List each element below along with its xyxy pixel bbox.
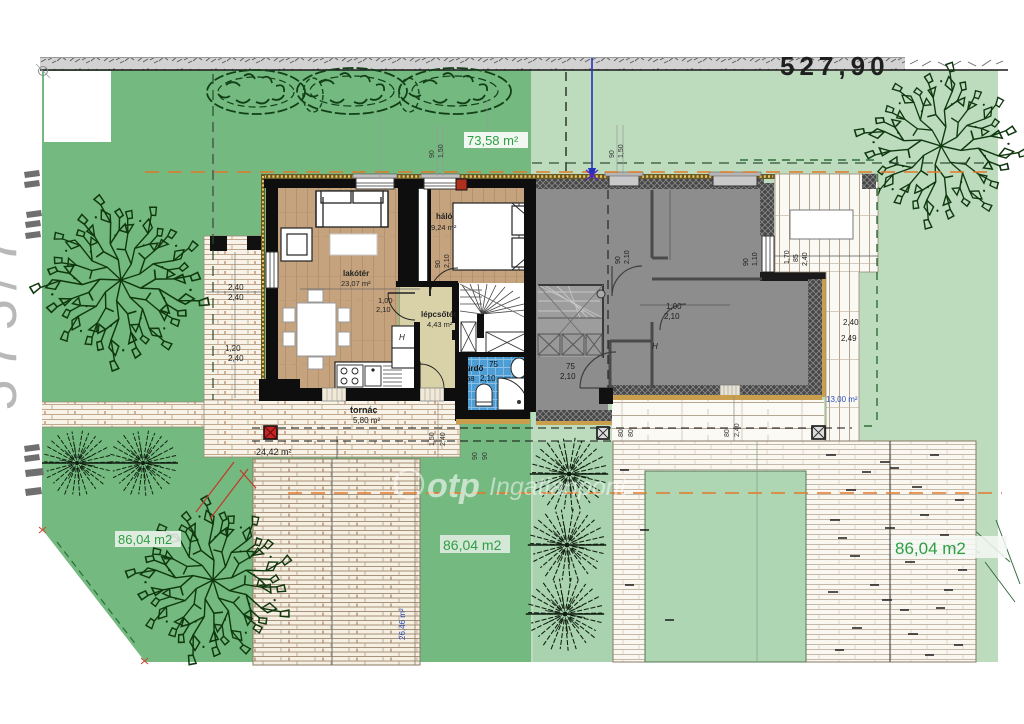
svg-text:2,40: 2,40 <box>228 283 244 292</box>
svg-text:90: 90 <box>482 452 489 460</box>
svg-text:90: 90 <box>435 260 442 268</box>
svg-text:2,40: 2,40 <box>843 318 859 327</box>
svg-text:2,68: 2,68 <box>460 374 475 383</box>
svg-text:90: 90 <box>429 150 436 158</box>
svg-text:527,90: 527,90 <box>780 51 890 81</box>
svg-text:2,10: 2,10 <box>480 374 496 383</box>
svg-text:2,49: 2,49 <box>841 334 857 343</box>
svg-text:26,46 m²: 26,46 m² <box>398 608 407 640</box>
svg-text:2,40: 2,40 <box>440 432 447 446</box>
svg-text:1,10: 1,10 <box>752 252 759 266</box>
svg-text:80: 80 <box>628 429 635 437</box>
svg-text:75: 75 <box>566 362 575 371</box>
svg-text:4,43 m²: 4,43 m² <box>427 320 453 329</box>
svg-text:13,00 m²: 13,00 m² <box>826 395 858 404</box>
svg-text:1,50: 1,50 <box>429 432 436 446</box>
svg-text:H: H <box>399 333 405 342</box>
svg-text:23,07 m²: 23,07 m² <box>341 279 371 288</box>
svg-text:2,40: 2,40 <box>802 252 809 266</box>
svg-text:86,04 m2: 86,04 m2 <box>443 537 502 553</box>
svg-text:80: 80 <box>618 429 625 437</box>
svg-text:1,00: 1,00 <box>666 302 682 311</box>
svg-text:lakótér: lakótér <box>343 269 369 278</box>
svg-text:2,10: 2,10 <box>560 372 576 381</box>
svg-text:90: 90 <box>615 256 622 264</box>
svg-text:H: H <box>652 342 658 351</box>
svg-text:24,42 m²: 24,42 m² <box>256 447 292 457</box>
svg-text:86,04 m2: 86,04 m2 <box>895 539 966 558</box>
svg-text:1,00: 1,00 <box>378 296 393 305</box>
svg-text:90: 90 <box>609 150 616 158</box>
svg-text:fürdő: fürdő <box>463 364 484 373</box>
svg-text:75: 75 <box>489 360 498 369</box>
svg-text:2,40: 2,40 <box>228 354 244 363</box>
svg-text:tornác: tornác <box>350 405 378 415</box>
svg-text:2,10: 2,10 <box>624 250 631 264</box>
svg-text:háló: háló <box>436 212 453 221</box>
svg-text:2,10: 2,10 <box>376 305 391 314</box>
svg-text:80: 80 <box>724 429 731 437</box>
svg-text:otp: otp <box>427 467 480 505</box>
svg-text:9,24 m²: 9,24 m² <box>431 223 457 232</box>
svg-text:2,40: 2,40 <box>734 423 741 437</box>
svg-text:575/7: 575/7 <box>0 225 28 410</box>
svg-text:1,20: 1,20 <box>225 344 241 353</box>
svg-text:1,50: 1,50 <box>618 144 625 158</box>
svg-text:2,40: 2,40 <box>228 293 244 302</box>
svg-text:85: 85 <box>793 254 800 262</box>
svg-text:2,10: 2,10 <box>664 312 680 321</box>
svg-text:1,50: 1,50 <box>438 144 445 158</box>
svg-text:1,70: 1,70 <box>784 250 791 264</box>
svg-text:5,80 m²: 5,80 m² <box>353 416 380 425</box>
svg-text:73,58 m²: 73,58 m² <box>467 133 519 148</box>
svg-text:lépcsőtér: lépcsőtér <box>421 310 457 319</box>
svg-text:2,10: 2,10 <box>444 254 451 268</box>
svg-text:86,04 m2: 86,04 m2 <box>118 532 172 547</box>
svg-text:Ingatlanpont: Ingatlanpont <box>489 473 628 501</box>
svg-text:90: 90 <box>472 452 479 460</box>
svg-text:90: 90 <box>743 258 750 266</box>
